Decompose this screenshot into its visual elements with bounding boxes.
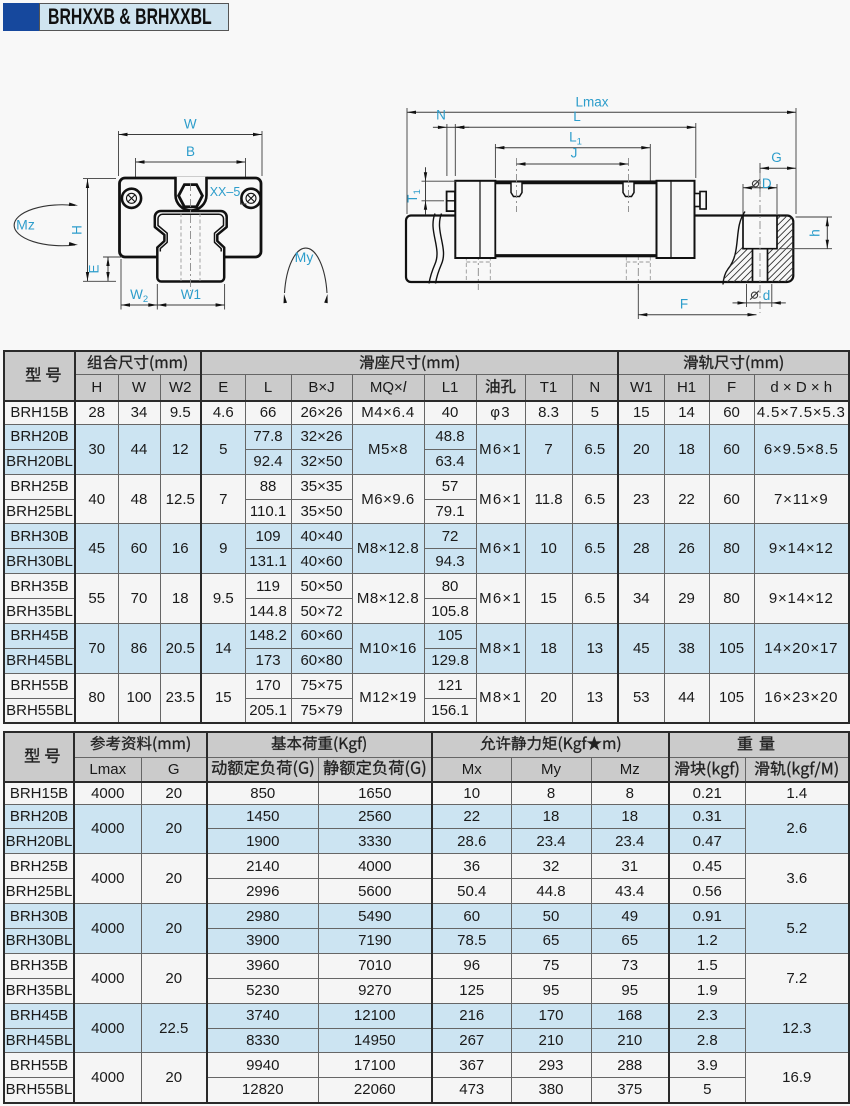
svg-text:D: D [762, 176, 772, 191]
svg-text:N: N [436, 108, 446, 123]
svg-text:H: H [70, 225, 85, 235]
svg-text:W: W [184, 117, 197, 132]
svg-text:B: B [186, 144, 195, 159]
svg-text:Mz: Mz [16, 217, 35, 233]
svg-text:W2: W2 [130, 287, 148, 305]
svg-text:T1: T1 [405, 189, 423, 203]
svg-text:F: F [680, 297, 688, 312]
svg-text:My: My [295, 249, 314, 265]
svg-text:J: J [571, 146, 578, 161]
svg-text:G: G [771, 150, 782, 165]
svg-text:d: d [763, 288, 771, 303]
svg-text:L: L [573, 109, 581, 124]
svg-text:E: E [87, 264, 102, 273]
svg-text:h: h [808, 229, 823, 237]
svg-text:W1: W1 [181, 287, 201, 302]
svg-text:Lmax: Lmax [575, 95, 608, 110]
svg-text:XX–5: XX–5 [210, 185, 241, 199]
